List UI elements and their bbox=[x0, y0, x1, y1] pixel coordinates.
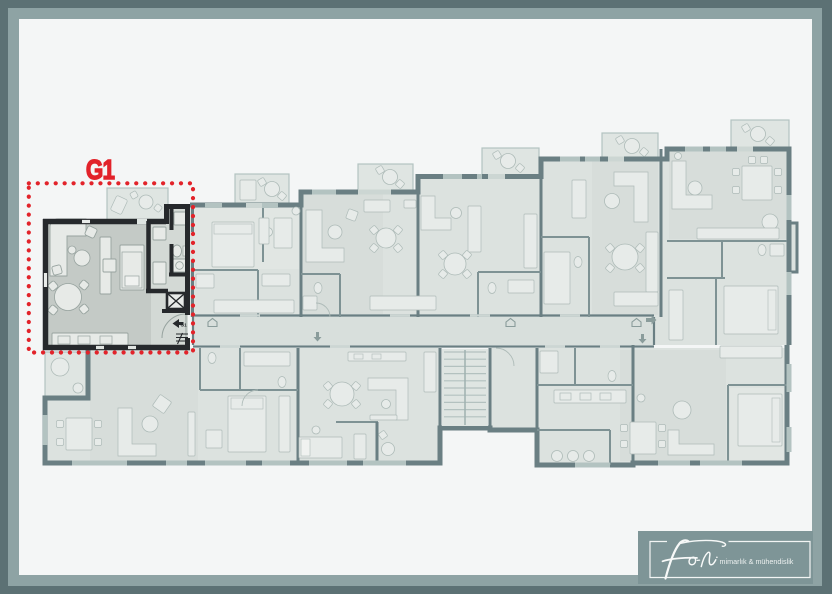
svg-text:G1: G1 bbox=[86, 155, 115, 186]
svg-text:mimarlık & mühendislik: mimarlık & mühendislik bbox=[720, 557, 794, 566]
svg-text:G1: G1 bbox=[181, 323, 188, 328]
